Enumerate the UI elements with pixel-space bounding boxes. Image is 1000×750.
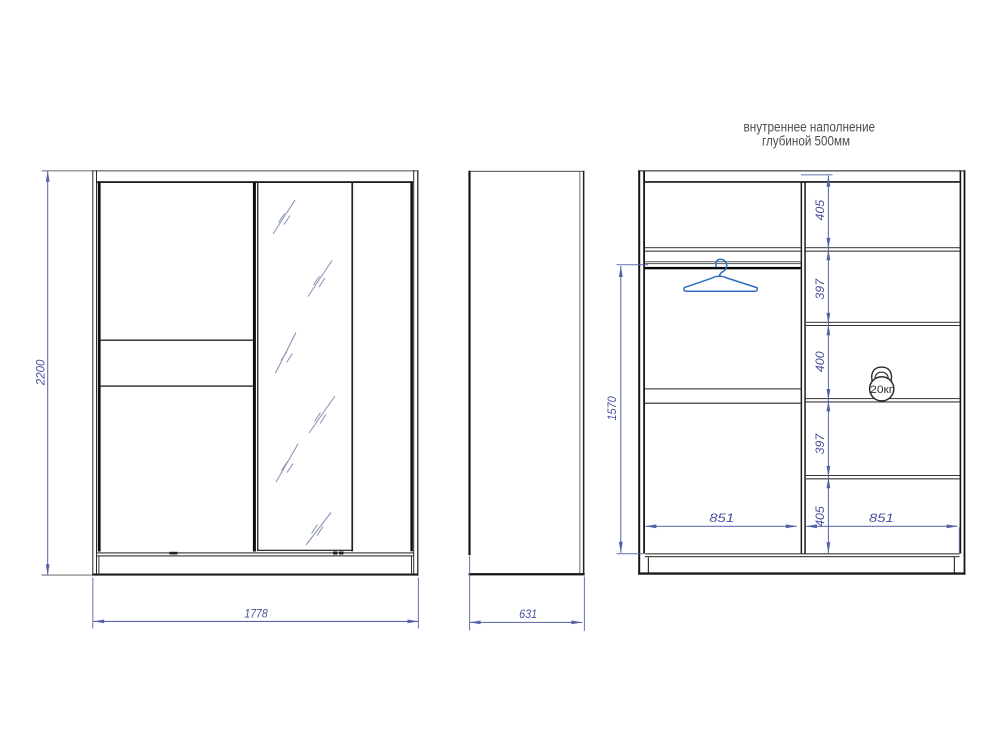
svg-text:397: 397 (813, 278, 827, 300)
svg-text:внутреннее наполнение: внутреннее наполнение (744, 119, 876, 134)
svg-text:631: 631 (519, 607, 537, 621)
svg-text:397: 397 (813, 432, 827, 454)
svg-text:851: 851 (709, 511, 734, 525)
svg-text:глубиной 500мм: глубиной 500мм (762, 133, 850, 148)
svg-text:20кг: 20кг (870, 384, 893, 396)
svg-text:405: 405 (813, 506, 827, 527)
svg-text:1778: 1778 (244, 606, 267, 620)
svg-text:400: 400 (813, 351, 827, 372)
svg-text:2200: 2200 (34, 359, 48, 386)
svg-text:1570: 1570 (605, 396, 619, 420)
svg-text:851: 851 (869, 511, 894, 525)
svg-text:405: 405 (813, 200, 827, 221)
